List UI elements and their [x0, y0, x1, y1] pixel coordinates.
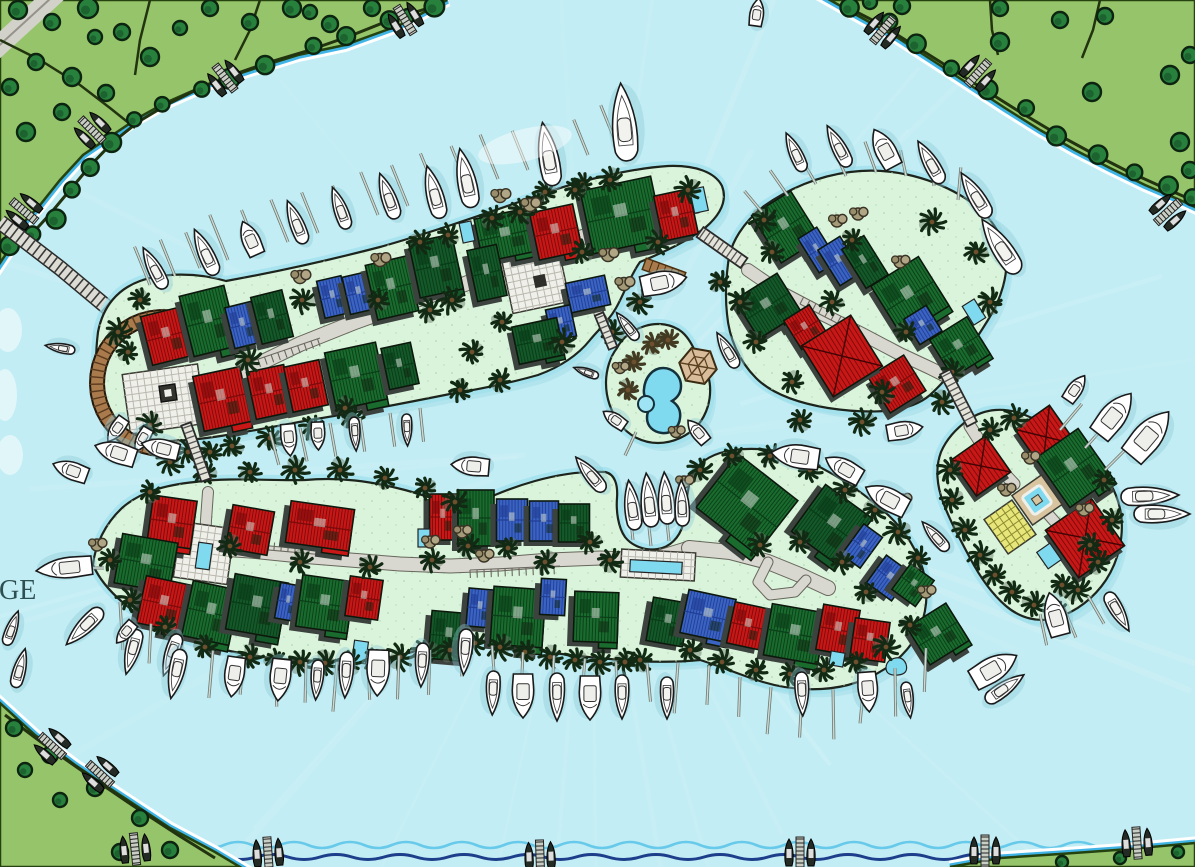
svg-text:GE: GE	[0, 575, 36, 606]
